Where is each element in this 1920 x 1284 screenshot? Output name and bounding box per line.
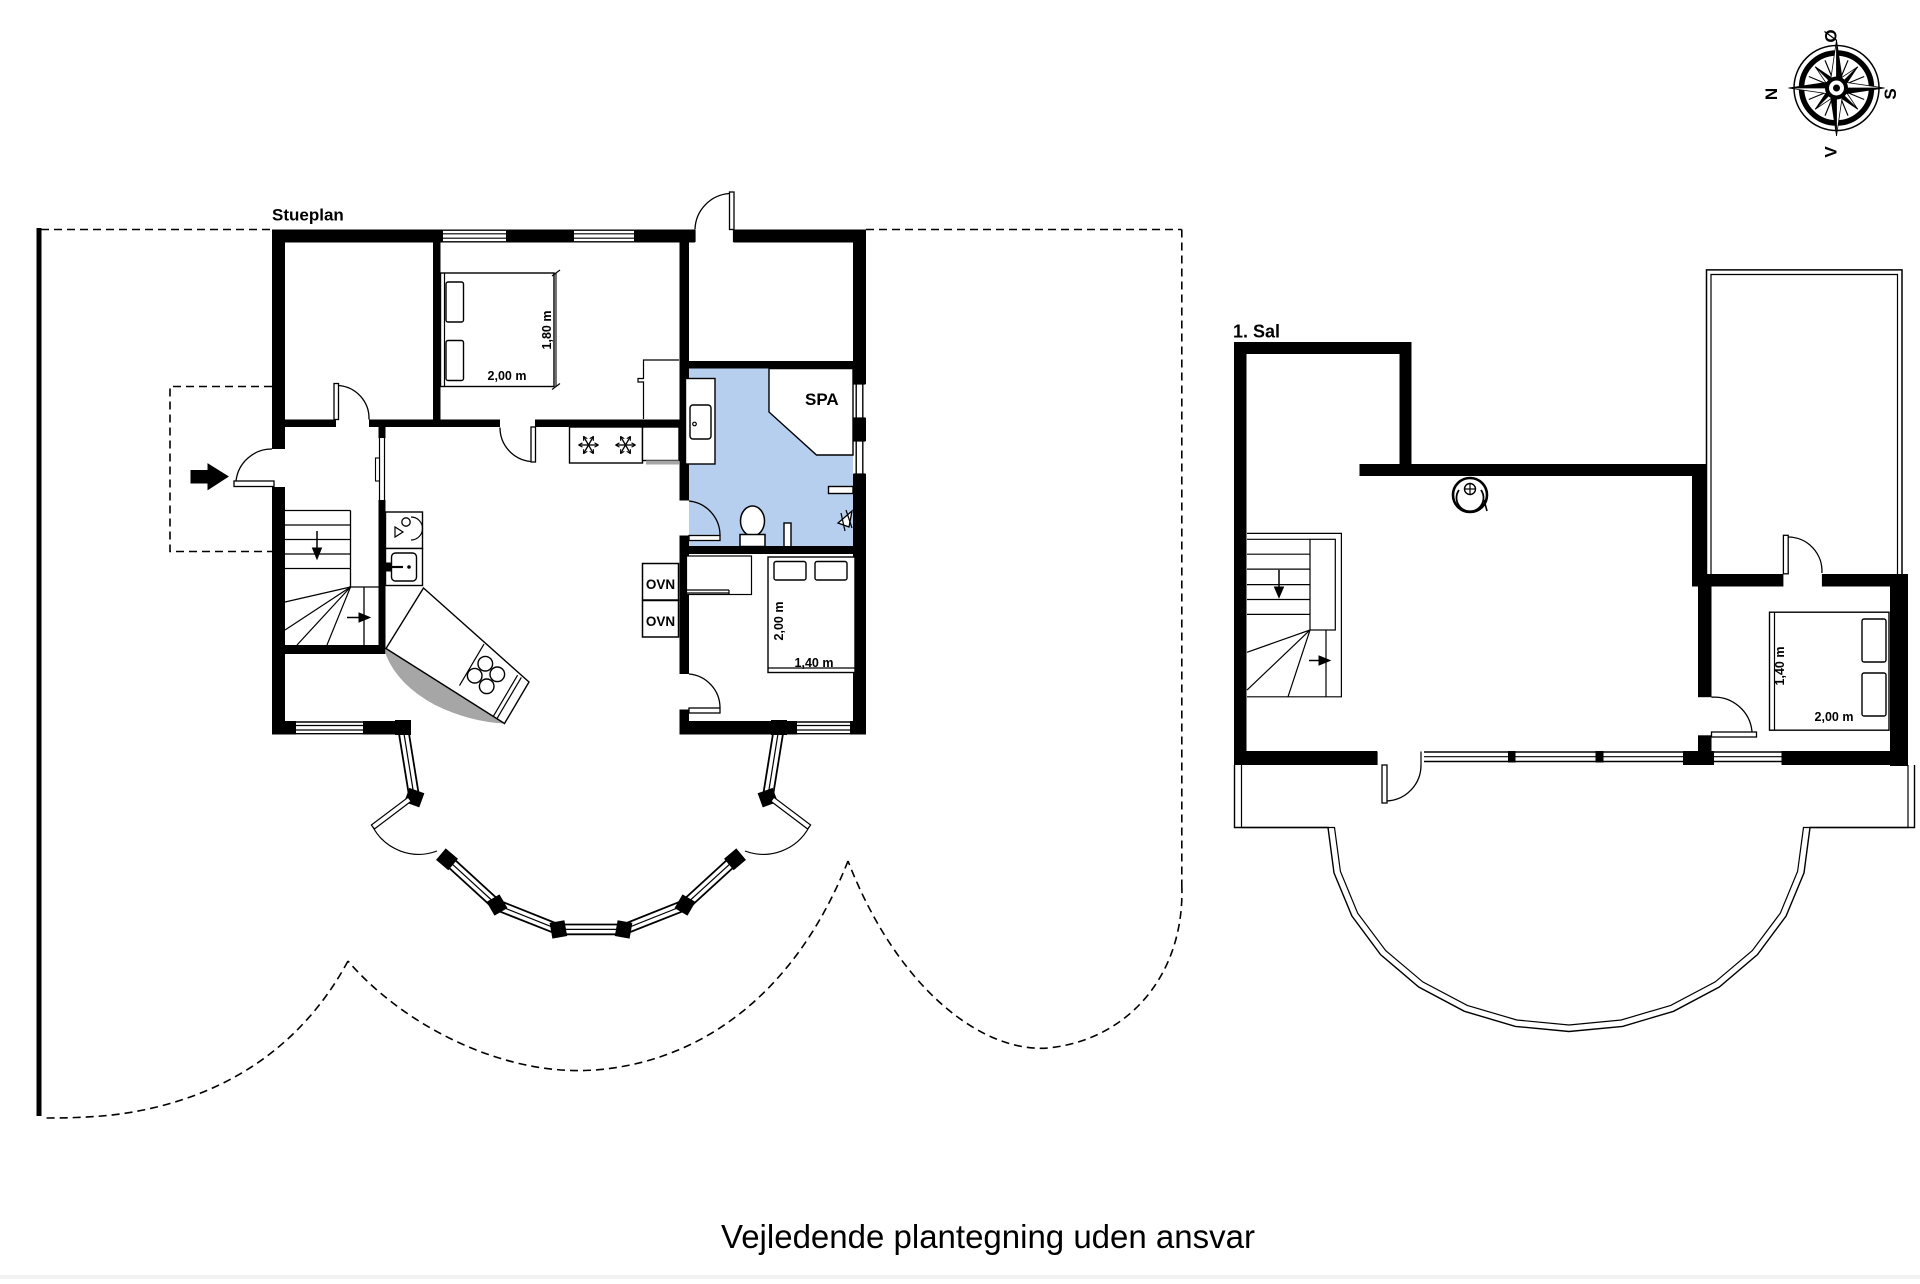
svg-text:SPA: SPA (805, 390, 839, 409)
svg-text:2,00 m: 2,00 m (1815, 710, 1854, 724)
svg-text:Stueplan: Stueplan (272, 206, 344, 225)
svg-text:N: N (1762, 88, 1781, 100)
svg-text:S: S (1881, 88, 1900, 99)
svg-text:V: V (1822, 146, 1841, 158)
svg-text:2,00 m: 2,00 m (488, 369, 527, 383)
svg-text:2,00 m: 2,00 m (772, 602, 786, 641)
svg-text:1,80 m: 1,80 m (540, 311, 554, 350)
svg-text:1,40 m: 1,40 m (795, 656, 834, 670)
svg-text:1. Sal: 1. Sal (1233, 322, 1280, 342)
svg-text:Ø: Ø (1822, 29, 1841, 42)
svg-text:OVN: OVN (646, 614, 675, 629)
svg-text:OVN: OVN (646, 577, 675, 592)
svg-text:Vejledende plantegning uden an: Vejledende plantegning uden ansvar (721, 1218, 1255, 1255)
svg-text:1,40 m: 1,40 m (1773, 647, 1787, 686)
